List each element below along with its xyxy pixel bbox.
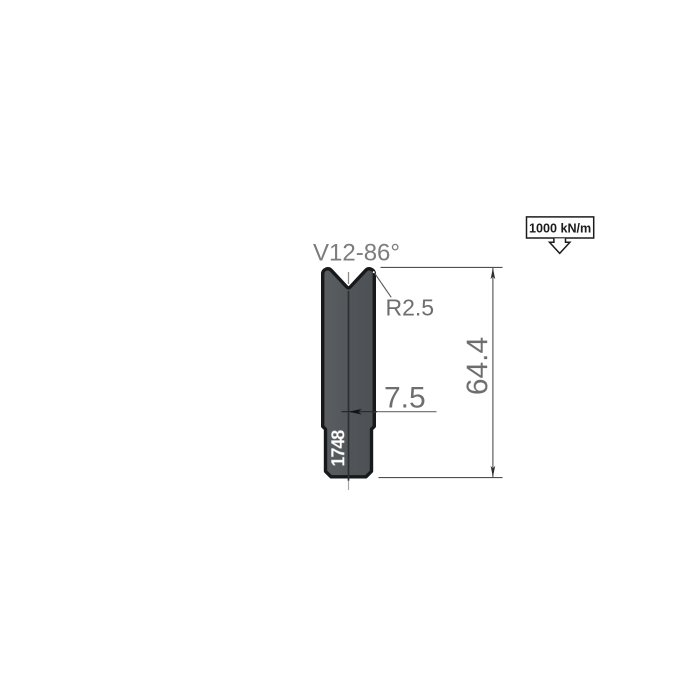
svg-text:1000 kN/m: 1000 kN/m	[529, 222, 591, 236]
svg-text:1748: 1748	[328, 430, 348, 467]
svg-text:64.4: 64.4	[461, 337, 494, 395]
svg-text:R2.5: R2.5	[386, 295, 435, 321]
svg-text:V12-86°: V12-86°	[313, 240, 400, 267]
svg-text:7.5: 7.5	[384, 381, 426, 414]
